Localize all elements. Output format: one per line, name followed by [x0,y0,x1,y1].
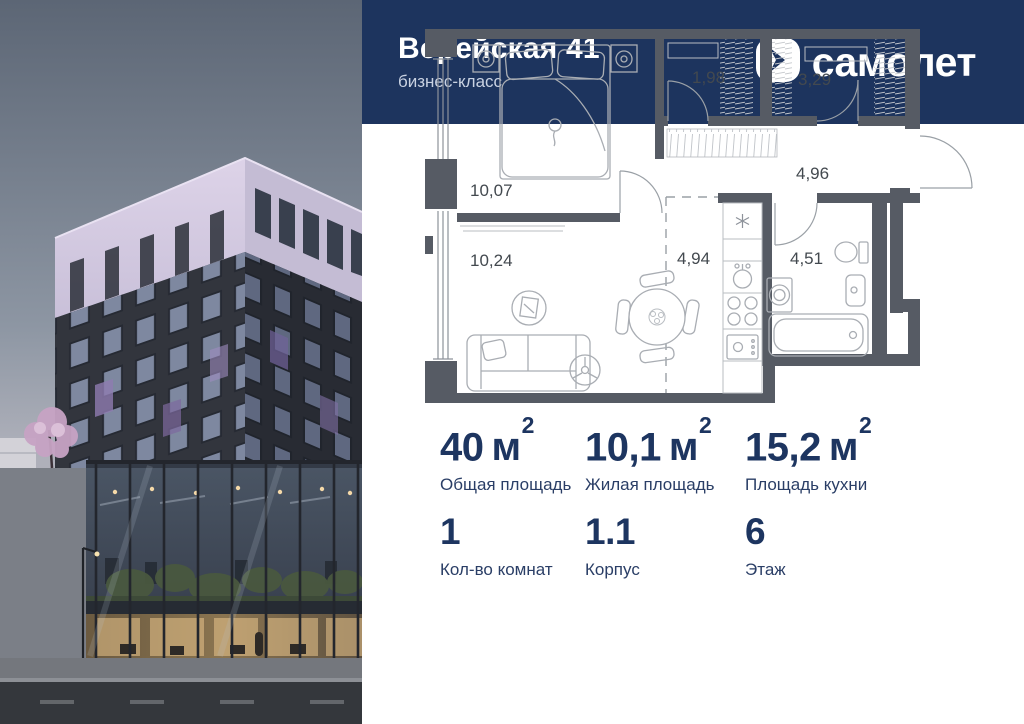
stat-kitchen-area-value: 15,2м2 [745,419,1008,466]
stat-total-area: 40м2 Общая площадь [440,419,585,495]
room-area-living-room: 10,24 [470,251,513,270]
stat-floor-value: 6 [745,513,1008,551]
stove-icon [728,297,757,325]
walls [425,29,920,403]
shelf-lines [460,226,565,231]
stat-rooms-count-label: Кол-во комнат [440,560,585,580]
bathtub-icon [769,314,868,356]
stat-total-area-label: Общая площадь [440,475,585,495]
door-bathroom [775,203,817,245]
stat-building-value: 1.1 [585,513,745,551]
door-bedroom [620,171,662,213]
stat-rooms-count: 1 Кол-во комнат [440,513,585,580]
window-bedroom [433,59,453,159]
bed [500,45,610,179]
sink-icon [734,264,752,288]
stat-building-label: Корпус [585,560,745,580]
building-photo [0,0,362,724]
stat-total-area-value: 40м2 [440,419,585,466]
toilet-icon [835,242,868,263]
room-area-wardrobe-small: 1,98 [692,68,725,87]
info-panel: Верейская 41 бизнес-класс самолет [362,0,1024,724]
room-area-kitchen: 4,94 [677,249,710,268]
dining-table [615,270,700,363]
fridge-icon [736,214,749,228]
building-photo-art [0,0,362,724]
apartment-stats: 40м2 Общая площадь 10,1м2 Жилая площадь … [440,419,1008,580]
stat-living-area-label: Жилая площадь [585,475,745,495]
podium [0,462,362,680]
bathroom-sink-icon [846,275,865,306]
stat-living-area: 10,1м2 Жилая площадь [585,419,745,495]
stat-living-area-value: 10,1м2 [585,419,745,466]
apartment-card: Верейская 41 бизнес-класс самолет [0,0,1024,724]
stat-kitchen-area: 15,2м2 Площадь кухни [745,419,1008,495]
stat-floor-label: Этаж [745,560,1008,580]
street [0,658,362,724]
stat-building: 1.1 Корпус [585,513,745,580]
wardrobe-hatches [667,39,905,157]
room-area-bedroom: 10,07 [470,181,513,200]
stat-kitchen-area-label: Площадь кухни [745,475,1008,495]
wall-art [512,291,546,325]
oven-icon [727,335,758,359]
floor-plan-drawing: 10,07 1,98 3,29 4,96 10,24 4,94 4,51 [415,21,990,411]
room-area-wardrobe-large: 3,29 [798,70,831,89]
stat-floor: 6 Этаж [745,513,1008,580]
door-wardrobe-small [668,81,708,121]
nightstand-left [473,45,499,72]
window-living-room [433,211,453,359]
room-area-bathroom: 4,51 [790,249,823,268]
stat-rooms-count-value: 1 [440,513,585,551]
nightstand-right [611,45,637,72]
kitchen-counter [723,203,762,393]
room-area-hallway: 4,96 [796,164,829,183]
floor-lamp [570,355,600,385]
floor-plan: 10,07 1,98 3,29 4,96 10,24 4,94 4,51 [415,21,990,416]
door-entrance [920,136,972,188]
